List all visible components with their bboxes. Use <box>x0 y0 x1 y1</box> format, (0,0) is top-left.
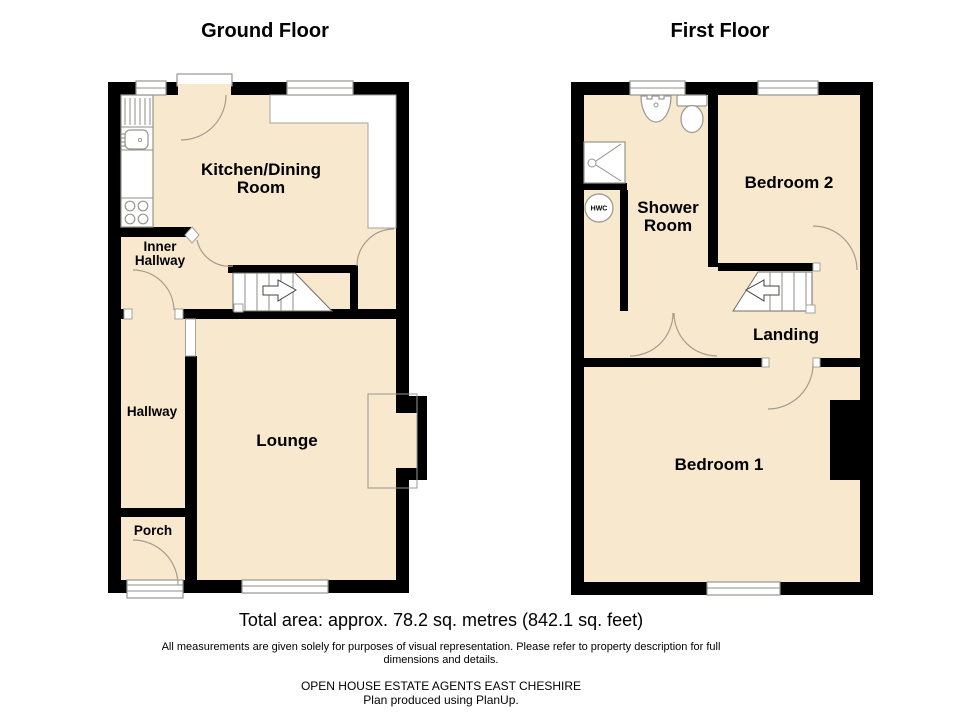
hwc-label: HWC <box>591 206 608 213</box>
ground-floor-plan: Ground Floor <box>108 20 427 598</box>
window-icon <box>758 81 818 95</box>
window-icon <box>136 81 166 95</box>
lounge-bay-area <box>394 413 417 468</box>
hallway-lounge-opening <box>186 319 196 356</box>
room-label-porch: Porch <box>134 523 172 538</box>
door-jamb <box>762 358 769 367</box>
window-icon <box>287 81 353 95</box>
disclaimer-line1: All measurements are given solely for pu… <box>0 641 882 653</box>
door-jamb <box>813 263 820 271</box>
hwc-icon: HWC <box>585 194 613 222</box>
window-icon <box>242 580 328 593</box>
room-label-lounge: Lounge <box>256 431 317 450</box>
produced-by-text: Plan produced using PlanUp. <box>0 693 882 707</box>
door-jamb <box>124 309 132 319</box>
room-label-landing: Landing <box>753 325 819 344</box>
sink-icon <box>121 130 148 149</box>
chimney-breast <box>830 400 873 480</box>
room-label-inner-hallway-line2: Hallway <box>135 253 186 268</box>
room-label-bedroom2: Bedroom 2 <box>745 173 834 192</box>
total-area-text: Total area: approx. 78.2 sq. metres (842… <box>0 610 882 631</box>
room-label-kitchen-line2: Room <box>237 178 285 197</box>
first-floor-title: First Floor <box>671 20 770 42</box>
shower-tray-icon <box>584 142 625 183</box>
ground-floor-title: Ground Floor <box>201 20 329 42</box>
agent-name-text: OPEN HOUSE ESTATE AGENTS EAST CHESHIRE <box>0 679 882 693</box>
room-label-hallway: Hallway <box>127 404 178 419</box>
window-icon <box>707 582 780 595</box>
room-label-inner-hallway-line1: Inner <box>143 239 177 254</box>
first-floor-plan: First Floor <box>571 20 873 595</box>
floorplan-page: Ground Floor <box>0 0 980 712</box>
door-jamb <box>813 358 820 367</box>
floorplan-canvas: Ground Floor <box>0 0 980 712</box>
room-label-shower-line2: Room <box>644 216 692 235</box>
door-jamb <box>175 309 183 319</box>
disclaimer-line2: dimensions and details. <box>0 654 882 666</box>
room-label-bedroom1: Bedroom 1 <box>675 455 764 474</box>
room-label-kitchen-line1: Kitchen/Dining <box>201 160 321 179</box>
window-icon <box>630 81 685 95</box>
room-label-shower-line1: Shower <box>637 198 699 217</box>
